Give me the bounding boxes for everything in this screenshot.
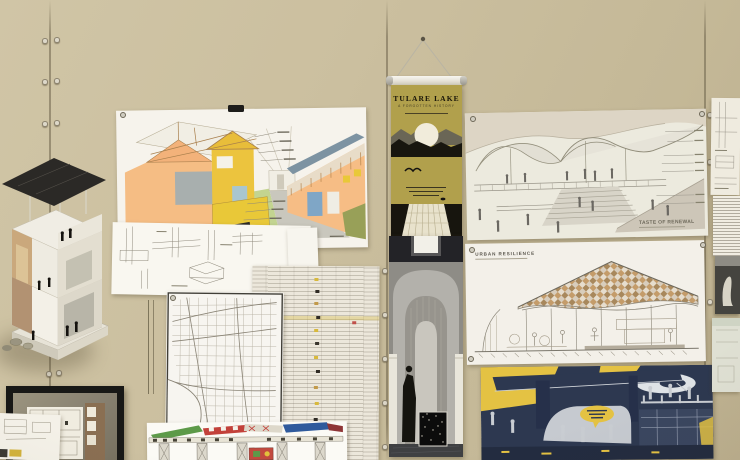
- banner-graphic: [391, 111, 462, 236]
- urban-title: URBAN RESILIENCE: [475, 251, 535, 257]
- wall-screw: [382, 444, 388, 450]
- small-sketch-card: [0, 413, 61, 460]
- archway-rendering: [389, 236, 463, 457]
- tulare-lake-banner: TULARE LAKE A FORGOTTEN HISTORY: [391, 85, 462, 236]
- wall-screw: [54, 120, 60, 126]
- navy-yellow-poster: [481, 365, 714, 460]
- archway-poster: [389, 236, 463, 457]
- sectional-model: [0, 134, 112, 364]
- wall-screw: [382, 400, 388, 406]
- push-pin: [120, 112, 126, 118]
- table-marker: [314, 302, 318, 305]
- taste-of-renewal-poster: TASTE OF RENEWAL: [465, 109, 708, 241]
- taste-title: TASTE OF RENEWAL: [639, 219, 695, 226]
- table-marker: [316, 370, 320, 373]
- edge-pale-drawing: [712, 318, 740, 392]
- push-pin: [699, 111, 705, 117]
- table-marker: [314, 329, 318, 332]
- edge-pale-sheet: [712, 318, 740, 392]
- wall-screw: [382, 312, 388, 318]
- edge-text-sheet: [713, 196, 740, 256]
- truss-market-drawing-sheet: [147, 421, 347, 460]
- edge-detail-drawing-sheet: [710, 98, 740, 195]
- table-marker: [316, 316, 320, 319]
- push-pin: [470, 116, 476, 122]
- urban-resilience-poster: URBAN RESILIENCE: [465, 240, 706, 365]
- table-marker: [314, 386, 318, 389]
- edge-photo-content: [715, 256, 740, 314]
- plan-room: [87, 407, 96, 417]
- wall-screw: [382, 356, 388, 362]
- banner-title: TULARE LAKE: [391, 94, 462, 103]
- navy-interior-graphic: [481, 365, 714, 460]
- push-pin: [700, 242, 706, 248]
- wall-screw: [54, 37, 60, 43]
- wall-screw: [42, 79, 48, 85]
- table-marker: [314, 278, 318, 281]
- push-pin: [468, 356, 474, 362]
- pinboard-wall-photo: LOS ANGELES, CA: [0, 0, 740, 460]
- yellow-model-fragment: [9, 449, 21, 456]
- plan-room: [87, 435, 96, 445]
- banner-subtitle: A FORGOTTEN HISTORY: [391, 104, 462, 108]
- banner-rod-cap: [460, 76, 467, 85]
- street-map: LOS ANGELES, CA: [165, 291, 284, 442]
- wall-screw: [42, 38, 48, 44]
- table-marker: [352, 321, 356, 324]
- hanging-wire: [153, 300, 154, 394]
- wall-screw: [54, 78, 60, 84]
- wall-screw: [707, 299, 713, 305]
- table-marker: [315, 402, 319, 405]
- los-angeles-map-poster: LOS ANGELES, CA: [165, 291, 284, 442]
- plan-model-brown-strip: [85, 403, 105, 460]
- hanging-wire: [148, 300, 149, 394]
- table-marker: [314, 356, 318, 359]
- banner-rod-cap: [386, 76, 393, 85]
- edge-detail-drawing: [710, 98, 740, 195]
- pavilion-section-drawing: URBAN RESILIENCE: [465, 240, 706, 365]
- push-pin: [170, 295, 176, 301]
- push-pin: [469, 247, 475, 253]
- binder-clip: [228, 105, 244, 112]
- banner-rod: [387, 76, 466, 85]
- edge-photo: [715, 256, 740, 314]
- wall-screw: [42, 121, 48, 127]
- table-marker: [315, 290, 319, 293]
- wall-screw: [382, 268, 388, 274]
- truss-market-drawing: [147, 421, 347, 460]
- pavilion-rendering: TASTE OF RENEWAL: [465, 109, 708, 241]
- plan-room: [87, 421, 96, 431]
- table-marker: [315, 342, 319, 345]
- dark-model-fragment: [0, 449, 8, 457]
